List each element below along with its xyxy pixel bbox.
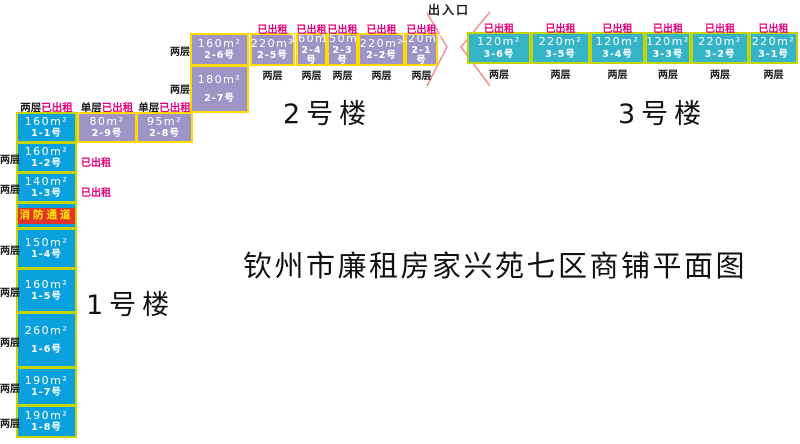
unit-number: 1-1号 bbox=[31, 129, 62, 139]
floors-label-1-5: 两层 bbox=[0, 284, 20, 299]
rented-label-2-2: 已出租 bbox=[358, 21, 405, 36]
unit-number: 2-7号 bbox=[204, 94, 235, 104]
unit-1-7: 190m² 1-7号 bbox=[16, 367, 77, 406]
entrance-label: 出入口 bbox=[428, 1, 470, 18]
unit-area: 160m² bbox=[25, 146, 69, 158]
unit-area: 150m² bbox=[25, 237, 69, 249]
unit-area: 260m² bbox=[25, 325, 69, 337]
unit-1-2: 160m² 1-2号 bbox=[16, 142, 77, 173]
floors-label-2-7: 两层 bbox=[170, 81, 190, 96]
building1-name: 1号楼 bbox=[86, 283, 175, 322]
unit-number: 3-6号 bbox=[484, 50, 515, 60]
unit-2-2: 220m² 2-2号 bbox=[358, 33, 405, 66]
unit-number: 2-8号 bbox=[149, 129, 180, 139]
floors-label-3-2: 两层 bbox=[691, 66, 749, 81]
rented-label-2-5: 已出租 bbox=[250, 21, 295, 36]
unit-number: 2-9号 bbox=[92, 129, 123, 139]
floors-label-3-1: 两层 bbox=[749, 66, 798, 81]
unit-2-1: 120m² 2-1号 bbox=[405, 33, 438, 66]
unit-number: 3-3号 bbox=[653, 50, 684, 60]
unit-area: 190m² bbox=[25, 410, 69, 422]
unit-2-9: 80m² 2-9号 bbox=[77, 112, 137, 143]
floors-label-3-5: 两层 bbox=[531, 66, 590, 81]
unit-area: 220m² bbox=[752, 36, 796, 48]
page-title: 钦州市廉租房家兴苑七区商铺平面图 bbox=[243, 243, 747, 285]
floors-label-2-3: 两层 bbox=[327, 67, 358, 82]
floors-label-1-3: 两层 bbox=[0, 181, 20, 196]
floors-label-2-4: 两层 bbox=[296, 67, 327, 82]
floors-label-3-3: 两层 bbox=[645, 66, 691, 81]
unit-area: 220m² bbox=[251, 38, 295, 50]
rented-label-2-1: 已出租 bbox=[405, 21, 438, 36]
unit-2-5: 220m² 2-5号 bbox=[250, 33, 295, 66]
unit-area: 160m² bbox=[25, 116, 69, 128]
unit-area: 80m² bbox=[89, 116, 124, 128]
floors-label-2-6: 两层 bbox=[170, 43, 190, 58]
unit-area: 220m² bbox=[539, 36, 583, 48]
unit-number: 3-4号 bbox=[602, 50, 633, 60]
unit-2-8: 95m² 2-8号 bbox=[136, 112, 193, 143]
unit-1-6: 260m² 1-6号 bbox=[16, 312, 77, 368]
unit-3-3: 120m² 3-3号 bbox=[645, 32, 691, 64]
floors-label-1-2: 两层 bbox=[0, 151, 20, 166]
floors-label-2-5: 两层 bbox=[250, 67, 295, 82]
floors-label-1-4: 两层 bbox=[0, 242, 20, 257]
floors-label-3-4: 两层 bbox=[590, 66, 645, 81]
unit-number: 2-1号 bbox=[407, 46, 436, 66]
rented-label-3-6: 已出租 bbox=[467, 20, 531, 35]
unit-number: 1-8号 bbox=[31, 423, 62, 433]
unit-area: 160m² bbox=[198, 38, 242, 50]
floors-label-1-6: 两层 bbox=[0, 334, 20, 349]
unit-3-4: 120m² 3-4号 bbox=[590, 32, 645, 64]
unit-number: 3-2号 bbox=[705, 50, 736, 60]
floors-label-2-1: 两层 bbox=[405, 67, 438, 82]
unit-area: 220m² bbox=[360, 38, 404, 50]
unit-area: 120m² bbox=[477, 36, 521, 48]
fire-passage-cell: 消防通道 bbox=[16, 202, 77, 229]
unit-number: 1-6号 bbox=[31, 345, 62, 355]
fire-passage-label: 消防通道 bbox=[18, 208, 75, 224]
unit-number: 1-3号 bbox=[31, 189, 62, 199]
unit-area: 120m² bbox=[596, 36, 640, 48]
rented-label-3-4: 已出租 bbox=[590, 20, 645, 35]
unit-area: 95m² bbox=[147, 116, 182, 128]
unit-3-1: 220m² 3-1号 bbox=[749, 32, 798, 64]
unit-area: 120m² bbox=[646, 36, 690, 48]
unit-area: 190m² bbox=[25, 375, 69, 387]
floors-label-2-2: 两层 bbox=[358, 67, 405, 82]
unit-number: 1-7号 bbox=[31, 388, 62, 398]
unit-number: 1-4号 bbox=[31, 250, 62, 260]
unit-1-5: 160m² 1-5号 bbox=[16, 268, 77, 313]
unit-2-7: 180m² 2-7号 bbox=[190, 65, 249, 113]
unit-number: 1-2号 bbox=[31, 159, 62, 169]
unit-number: 3-5号 bbox=[545, 50, 576, 60]
unit-number: 2-3号 bbox=[329, 46, 356, 66]
unit-2-3: 150m² 2-3号 bbox=[327, 33, 358, 66]
unit-number: 2-5号 bbox=[257, 51, 288, 61]
unit-area: 140m² bbox=[25, 176, 69, 188]
rented-label-2-4: 已出租 bbox=[296, 21, 327, 36]
rented-label-1-3: 已出租 bbox=[81, 184, 111, 199]
unit-1-8: 190m² 1-8号 bbox=[16, 405, 77, 438]
floors-label-1-8: 两层 bbox=[0, 415, 20, 430]
unit-1-1: 160m² 1-1号 bbox=[16, 112, 77, 143]
rented-label-3-3: 已出租 bbox=[645, 20, 691, 35]
rented-label-3-1: 已出租 bbox=[749, 20, 798, 35]
rented-label-3-2: 已出租 bbox=[691, 20, 749, 35]
unit-area: 220m² bbox=[698, 36, 742, 48]
unit-3-6: 120m² 3-6号 bbox=[467, 32, 531, 64]
unit-number: 2-2号 bbox=[366, 51, 397, 61]
unit-number: 2-4号 bbox=[298, 46, 325, 66]
unit-number: 1-5号 bbox=[31, 292, 62, 302]
floor-plan: 出入口 两层已出租 单层已出租 单层已出租 160m² 1-1号 160m² 1… bbox=[0, 0, 800, 444]
unit-number: 3-1号 bbox=[758, 50, 789, 60]
unit-3-2: 220m² 3-2号 bbox=[691, 32, 749, 64]
rented-label-3-5: 已出租 bbox=[531, 20, 590, 35]
unit-1-4: 150m² 1-4号 bbox=[16, 228, 77, 269]
unit-area: 180m² bbox=[198, 74, 242, 86]
unit-area: 160m² bbox=[25, 279, 69, 291]
floors-label-1-7: 两层 bbox=[0, 380, 20, 395]
unit-2-6: 160m² 2-6号 bbox=[190, 33, 249, 66]
unit-number: 2-6号 bbox=[204, 51, 235, 61]
unit-1-3: 140m² 1-3号 bbox=[16, 172, 77, 203]
building2-name: 2号楼 bbox=[283, 92, 372, 131]
building3-name: 3号楼 bbox=[618, 92, 707, 131]
floors-label-3-6: 两层 bbox=[467, 66, 531, 81]
unit-3-5: 220m² 3-5号 bbox=[531, 32, 590, 64]
rented-label-1-2: 已出租 bbox=[81, 154, 111, 169]
rented-label-2-3: 已出租 bbox=[327, 21, 358, 36]
